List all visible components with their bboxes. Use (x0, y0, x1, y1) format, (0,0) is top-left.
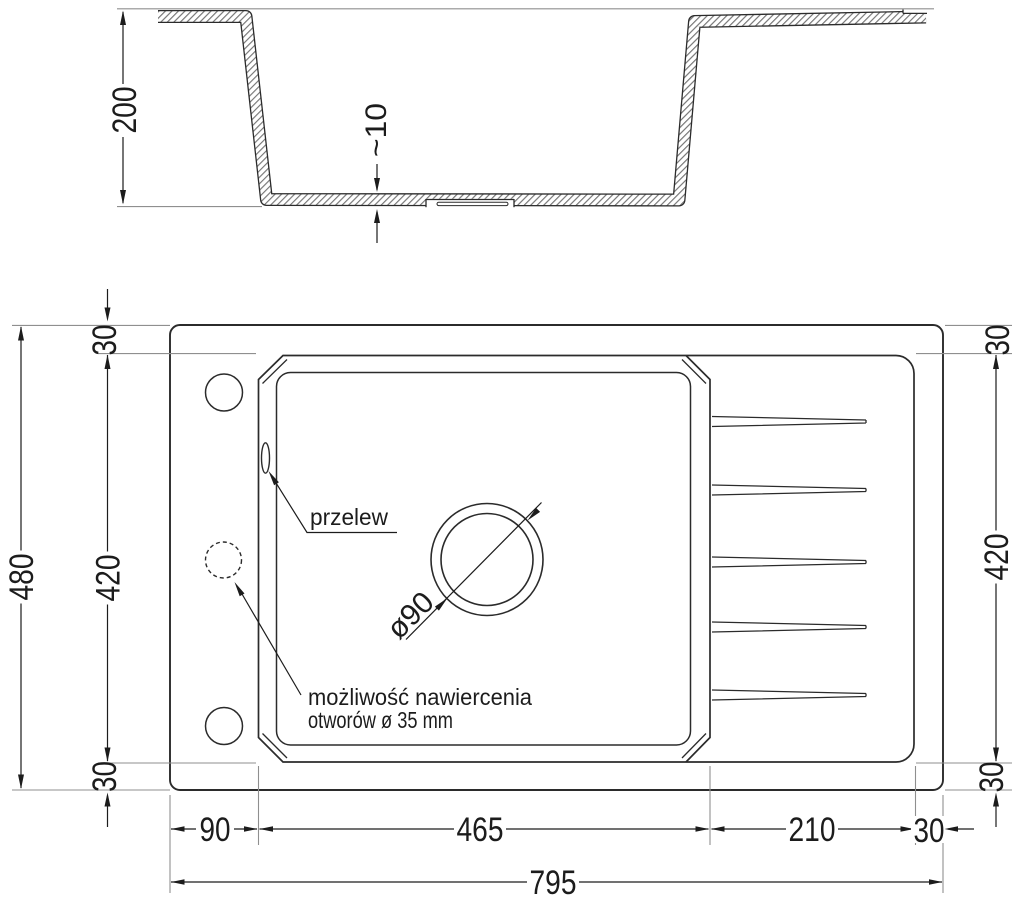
drill-note-line2: otworów ø 35 mm (308, 707, 453, 733)
dimension-bowl-width-465: 465 (260, 811, 710, 849)
dimension-thickness-10: ~10 (360, 103, 393, 243)
right-rim-value: 30 (914, 812, 945, 850)
dimension-depth-200: 200 (106, 11, 144, 205)
overflow-slot (262, 443, 270, 473)
dimension-drainer-width-210: 210 (711, 811, 914, 849)
top-rim-right-value: 30 (979, 325, 1017, 356)
dimension-right-rim-30: 30 (911, 812, 974, 850)
dimension-top-rim-left-30: 30 (86, 289, 124, 356)
left-rim-value: 90 (200, 811, 231, 849)
dimension-left-rim-90: 90 (171, 811, 258, 849)
profile-hatch (158, 17, 926, 201)
overflow-label: przelew (310, 504, 389, 530)
drain-plate (437, 202, 508, 205)
dimension-bottom-rim-left-30: 30 (86, 761, 124, 827)
cross-section-view: 200 ~10 (106, 5, 934, 243)
dimension-overall-width-795: 795 (171, 864, 943, 902)
overall-depth-value: 480 (3, 554, 41, 601)
depth-value: 200 (106, 87, 144, 134)
top-rim-left-value: 30 (86, 325, 124, 356)
drainer-width-value: 210 (789, 811, 836, 849)
bottom-rim-left-value: 30 (86, 761, 124, 792)
dimension-bottom-rim-right-30: 30 (973, 762, 1011, 828)
technical-drawing: 200 ~10 (0, 0, 1024, 913)
sink-outer-edge (170, 325, 943, 790)
dimension-inner-depth-right-420: 420 (978, 355, 1016, 763)
drain-recess (426, 199, 514, 209)
profile-outline (158, 17, 926, 201)
overall-width-value: 795 (530, 864, 577, 902)
thickness-value: ~10 (360, 103, 393, 157)
dimension-inner-depth-left-420: 420 (90, 355, 128, 763)
dimension-overall-depth-480: 480 (3, 326, 41, 789)
inner-depth-left-value: 420 (90, 555, 128, 602)
bottom-rim-right-value: 30 (973, 762, 1011, 793)
plan-view: przelew ø90 możliwość nawiercenia otworó… (170, 325, 943, 790)
bowl-width-value: 465 (457, 811, 504, 849)
inner-depth-right-value: 420 (978, 534, 1016, 581)
dimension-top-rim-right-30: 30 (979, 325, 1017, 356)
